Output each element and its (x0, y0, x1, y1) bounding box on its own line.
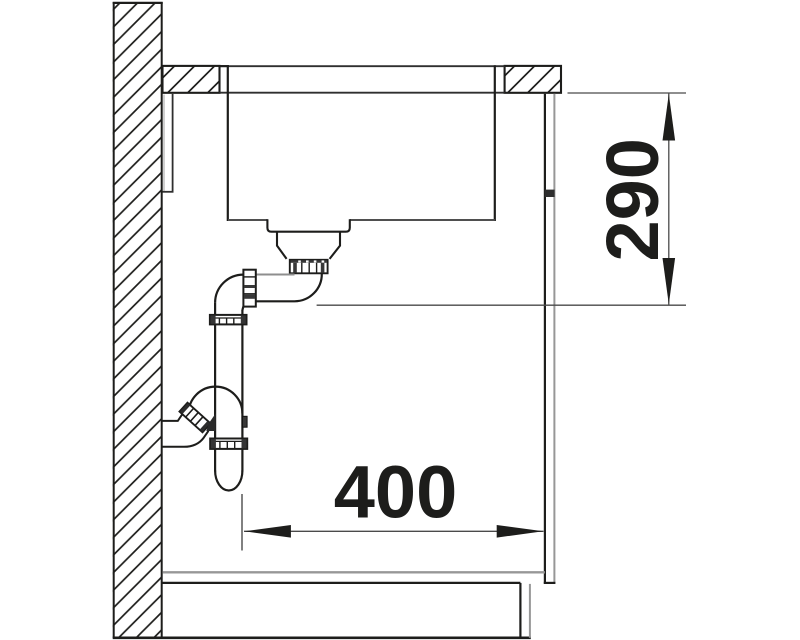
svg-text:290: 290 (591, 138, 674, 261)
svg-text:400: 400 (334, 451, 457, 534)
